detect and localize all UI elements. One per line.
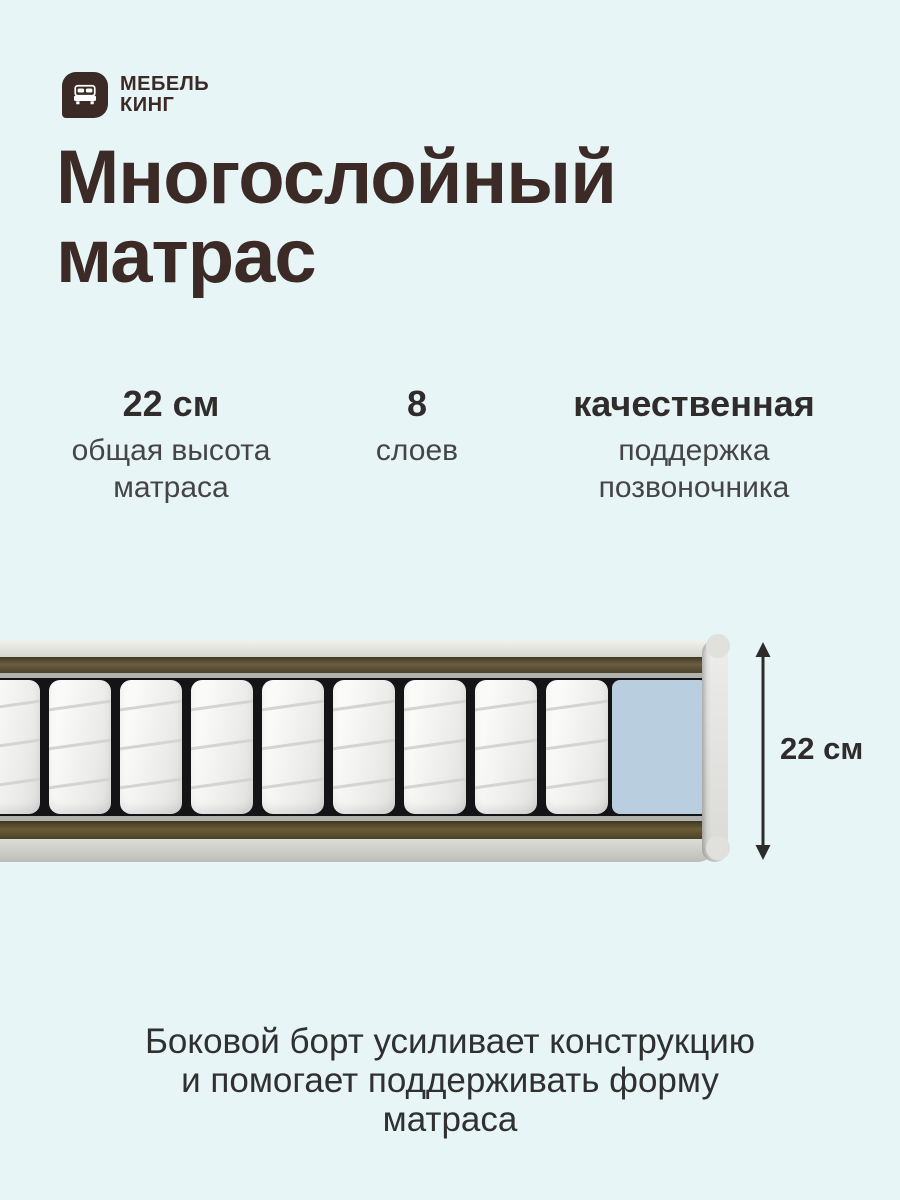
page-title-line2: матрас — [56, 217, 616, 296]
footer-note-line3: матраса — [0, 1100, 900, 1139]
product-card: МЕБЕЛЬ КИНГ Многослойный матрас 22 см об… — [0, 0, 900, 1200]
spring-seam — [120, 777, 182, 790]
stat-support: качественная поддержка позвоночника — [554, 383, 834, 506]
layer-top-fabric — [0, 640, 714, 657]
brand-logo-mark — [62, 72, 108, 118]
pocket-spring — [120, 680, 182, 814]
spring-seam — [546, 738, 608, 751]
brand-name-line1: МЕБЕЛЬ — [120, 74, 209, 95]
pocket-spring — [0, 680, 40, 814]
stat-value: качественная — [554, 383, 834, 425]
spring-seam — [333, 699, 395, 712]
spring-seam — [475, 699, 537, 712]
spring-seam — [0, 699, 40, 712]
spring-seam — [49, 699, 111, 712]
page-title: Многослойный матрас — [56, 138, 616, 296]
spring-seam — [191, 738, 253, 751]
pocket-spring — [546, 680, 608, 814]
spring-seam — [404, 738, 466, 751]
page-title-line1: Многослойный — [56, 138, 616, 217]
spring-seam — [0, 777, 40, 790]
spring-seam — [546, 777, 608, 790]
layer-pocket-springs — [0, 678, 714, 816]
spring-seam — [262, 738, 324, 751]
footer-note: Боковой борт усиливает конструкцию и пом… — [0, 1022, 900, 1139]
spring-seam — [475, 777, 537, 790]
edge-knob-top — [706, 634, 730, 658]
pocket-spring — [262, 680, 324, 814]
stat-total-height: 22 см общая высота матраса — [46, 383, 296, 506]
edge-knob-bottom — [706, 836, 730, 860]
brand-name: МЕБЕЛЬ КИНГ — [120, 74, 209, 116]
spring-seam — [191, 699, 253, 712]
side-foam-block — [612, 680, 708, 814]
pocket-spring — [475, 680, 537, 814]
mattress-side-edge — [702, 640, 728, 862]
mattress-cross-section — [0, 640, 714, 862]
brand-name-line2: КИНГ — [120, 95, 209, 116]
stat-label: общая высота матраса — [46, 432, 296, 506]
brand-logo: МЕБЕЛЬ КИНГ — [62, 72, 209, 118]
layer-felt-bottom — [0, 821, 714, 839]
stat-value: 8 — [317, 383, 517, 425]
spring-seam — [120, 738, 182, 751]
stat-value: 22 см — [46, 383, 296, 425]
layer-felt-top — [0, 657, 714, 673]
spring-seam — [0, 738, 40, 751]
stats-row: 22 см общая высота матраса 8 слоев качес… — [0, 383, 900, 503]
height-dimension-label: 22 см — [780, 731, 890, 767]
spring-seam — [333, 738, 395, 751]
spring-seam — [546, 699, 608, 712]
pocket-spring — [49, 680, 111, 814]
pocket-spring — [191, 680, 253, 814]
pocket-spring — [333, 680, 395, 814]
bed-icon — [70, 80, 100, 110]
spring-seam — [404, 699, 466, 712]
spring-seam — [191, 777, 253, 790]
footer-note-line1: Боковой борт усиливает конструкцию — [0, 1022, 900, 1061]
layer-bottom-fabric — [0, 839, 714, 862]
stat-layers: 8 слоев — [317, 383, 517, 469]
spring-seam — [49, 777, 111, 790]
arrow-updown-icon — [747, 640, 779, 862]
stat-label: поддержка позвоночника — [554, 432, 834, 506]
stat-label: слоев — [317, 432, 517, 469]
spring-seam — [333, 777, 395, 790]
spring-seam — [49, 738, 111, 751]
spring-seam — [262, 699, 324, 712]
spring-seam — [475, 738, 537, 751]
footer-note-line2: и помогает поддерживать форму — [0, 1061, 900, 1100]
spring-seam — [120, 699, 182, 712]
pocket-spring — [404, 680, 466, 814]
spring-seam — [404, 777, 466, 790]
spring-seam — [262, 777, 324, 790]
